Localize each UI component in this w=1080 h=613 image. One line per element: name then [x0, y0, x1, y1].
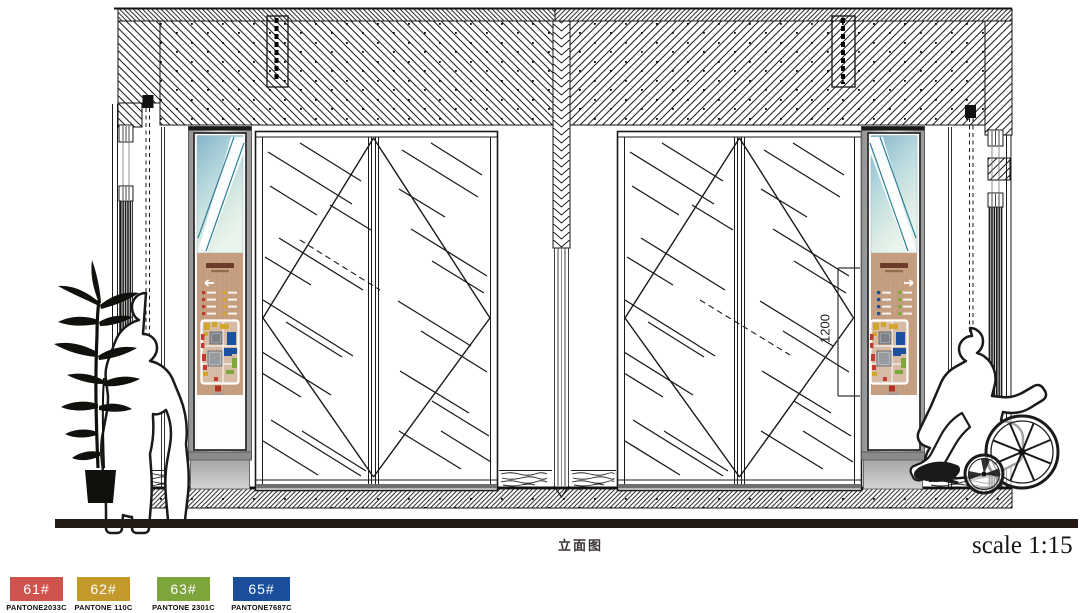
elevation-title: 立面图: [558, 535, 603, 554]
site-map: [201, 320, 239, 384]
scale-label: scale 1:15: [972, 532, 1073, 560]
floor-slab-section: [120, 487, 1012, 508]
ground-line: [55, 519, 1078, 528]
left-signage-kiosk: [189, 127, 252, 490]
legend-pantone-label: PANTONE2033C: [2, 603, 71, 612]
legend-chip: 62#: [77, 577, 130, 601]
dimension-label: 1200: [818, 307, 833, 351]
legend-chip: 61#: [10, 577, 63, 601]
wheelchair-person-silhouette: [911, 328, 1058, 493]
legend-chip: 63#: [157, 577, 210, 601]
right-signage-kiosk: [862, 127, 925, 490]
site-map: [870, 320, 908, 384]
legend-pantone-label: PANTONE7687C: [227, 603, 296, 612]
standing-person-silhouette: [101, 293, 189, 533]
elevation-linework: [0, 0, 1080, 613]
left-door-bay: [256, 132, 498, 491]
legend-pantone-label: PANTONE 2301C: [149, 603, 218, 612]
legend-chip: 65#: [233, 577, 290, 601]
wheelchair-front-wheel: [965, 455, 1003, 493]
center-mullion: [553, 21, 570, 497]
legend-pantone-label: PANTONE 110C: [69, 603, 138, 612]
elevation-drawing-canvas: 立面图 scale 1:15 1200 61# 62# 63# 65# PANT…: [0, 0, 1080, 613]
